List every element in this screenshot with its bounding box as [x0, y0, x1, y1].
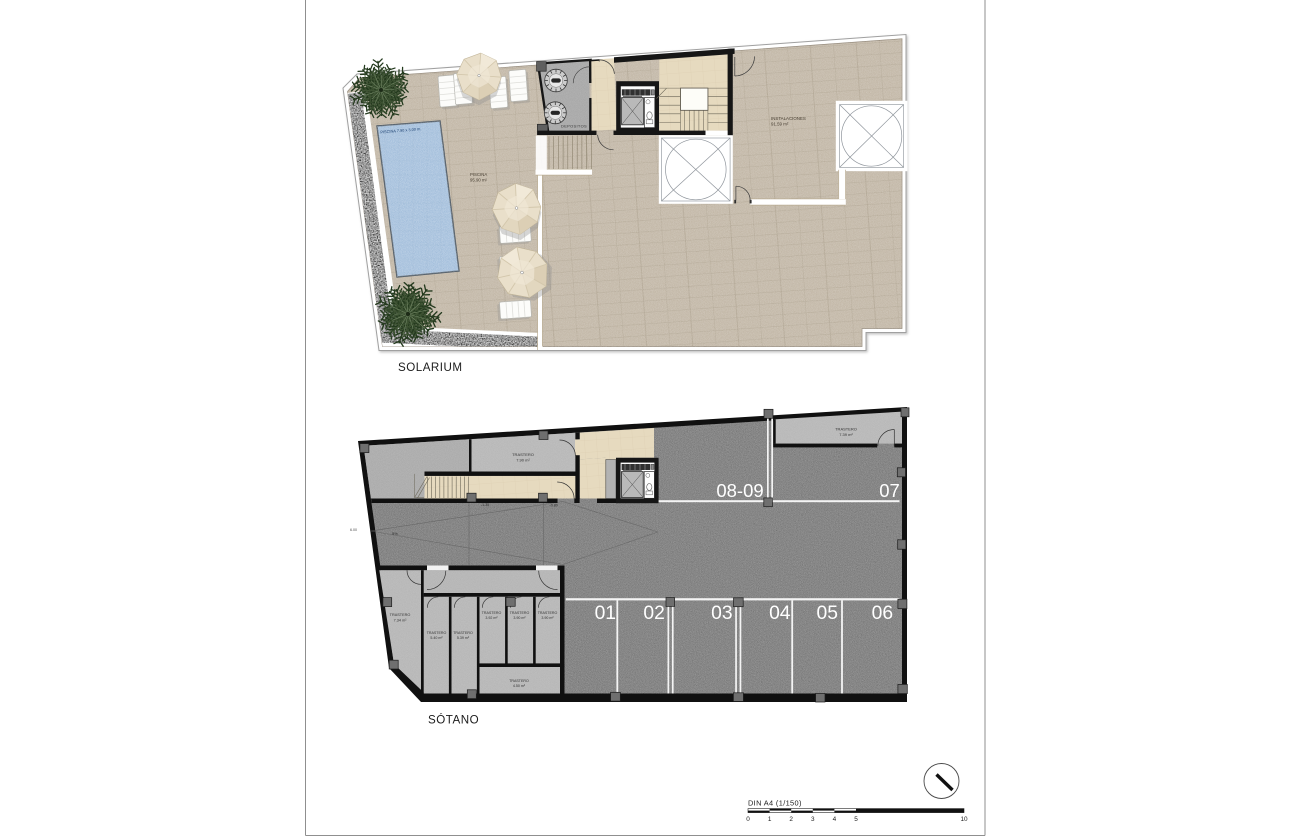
svg-text:TRASTERO: TRASTERO	[390, 613, 411, 617]
svg-text:91.59 m²: 91.59 m²	[771, 122, 789, 127]
svg-text:SÓTANO: SÓTANO	[428, 714, 479, 727]
svg-text:DIN A4 (1/150): DIN A4 (1/150)	[748, 799, 802, 808]
svg-text:7.90 m²: 7.90 m²	[516, 458, 530, 463]
svg-text:3.90 m²: 3.90 m²	[541, 616, 554, 620]
svg-text:4.50 m²: 4.50 m²	[513, 684, 526, 688]
svg-text:2: 2	[789, 816, 793, 823]
svg-text:3.92 m²: 3.92 m²	[485, 616, 498, 620]
svg-text:06: 06	[872, 603, 893, 624]
svg-text:TRASTERO: TRASTERO	[427, 631, 447, 635]
svg-text:1: 1	[768, 816, 772, 823]
svg-text:-1.35: -1.35	[481, 503, 489, 507]
svg-text:05: 05	[816, 603, 837, 624]
svg-text:01: 01	[595, 603, 616, 624]
svg-text:-0.80: -0.80	[550, 504, 558, 508]
svg-text:TRASTERO: TRASTERO	[509, 679, 529, 683]
svg-text:0: 0	[746, 816, 750, 823]
svg-text:10: 10	[960, 816, 968, 823]
svg-text:3.90 m²: 3.90 m²	[513, 616, 526, 620]
svg-text:7.39 m²: 7.39 m²	[839, 432, 853, 437]
svg-text:3: 3	[811, 816, 815, 823]
svg-text:5.40 m²: 5.40 m²	[430, 636, 443, 640]
svg-text:INSTALACIONES: INSTALACIONES	[771, 116, 806, 121]
svg-text:SOLARIUM: SOLARIUM	[398, 361, 463, 374]
svg-text:4: 4	[833, 816, 837, 823]
svg-text:6.00: 6.00	[350, 528, 357, 532]
svg-text:08-09: 08-09	[716, 480, 763, 501]
svg-text:5.39 m²: 5.39 m²	[457, 636, 470, 640]
svg-text:TRASTERO: TRASTERO	[482, 611, 502, 615]
svg-text:5%: 5%	[392, 531, 398, 536]
svg-text:TRASTERO: TRASTERO	[512, 452, 534, 457]
svg-text:95.90 m²: 95.90 m²	[470, 178, 488, 183]
svg-text:TRASTERO: TRASTERO	[453, 631, 473, 635]
svg-text:TRASTERO: TRASTERO	[835, 427, 857, 432]
svg-text:04: 04	[769, 603, 791, 624]
svg-text:TRASTERO: TRASTERO	[538, 611, 558, 615]
svg-text:02: 02	[643, 603, 664, 624]
svg-text:PISCINA: PISCINA	[470, 172, 487, 177]
svg-text:5: 5	[854, 816, 858, 823]
svg-text:7.34 m²: 7.34 m²	[394, 618, 408, 622]
svg-text:TRASTERO: TRASTERO	[510, 611, 530, 615]
svg-text:DEPOSITOS: DEPOSITOS	[561, 124, 587, 129]
svg-text:07: 07	[879, 480, 900, 501]
svg-text:03: 03	[711, 603, 732, 624]
